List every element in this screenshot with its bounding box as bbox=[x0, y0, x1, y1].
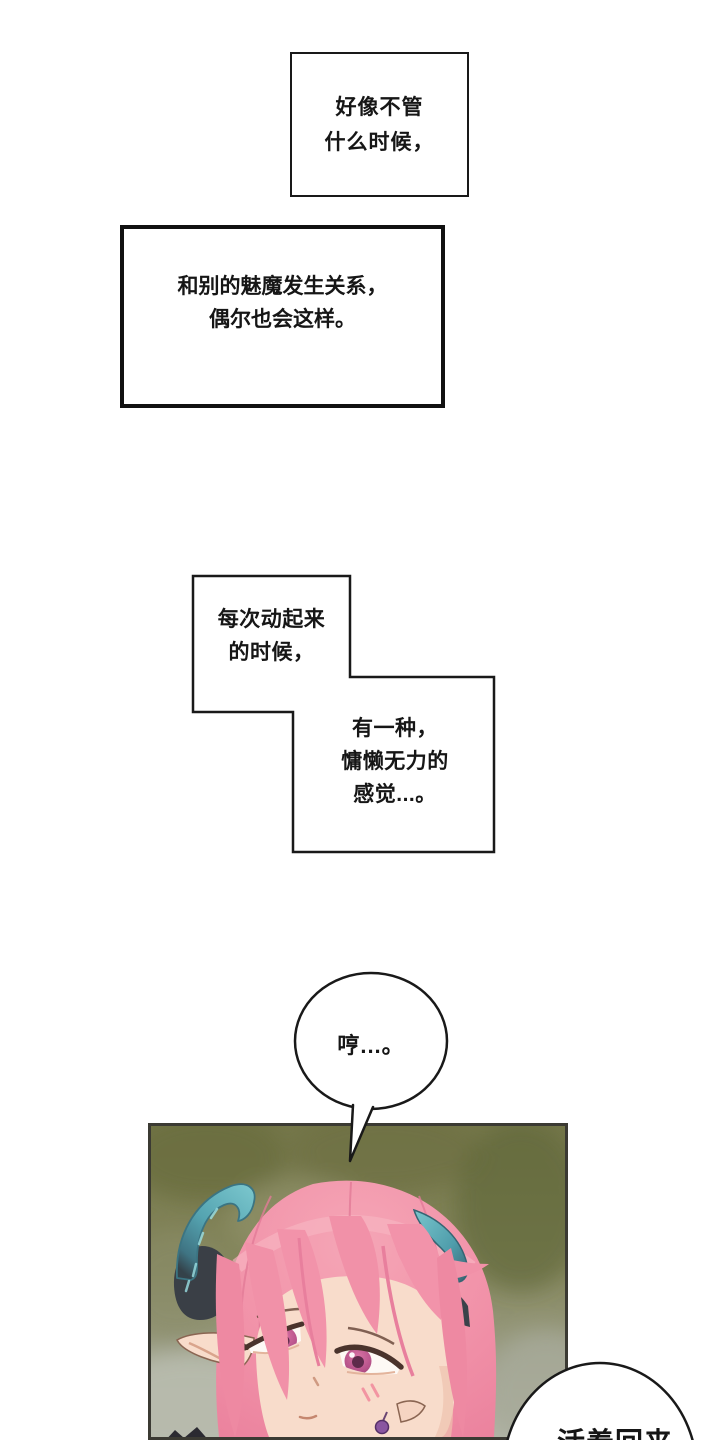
bubble-tail bbox=[350, 1105, 373, 1161]
narration-box-2: 和别的魅魔发生关系， 偶尔也会这样。 bbox=[120, 225, 445, 408]
speech-bubble-1 bbox=[283, 963, 463, 1168]
narration-line: 每次动起来 bbox=[193, 603, 350, 636]
narration-line: 偶尔也会这样。 bbox=[209, 303, 356, 336]
narration-line: 和别的魅魔发生关系， bbox=[178, 270, 388, 303]
narration-line: 感觉...。 bbox=[300, 778, 490, 811]
comic-page: 好像不管 什么时候， 和别的魅魔发生关系， 偶尔也会这样。 每次动起来 的时候，… bbox=[0, 0, 720, 1440]
speech-bubble-2-text: 活着回来 bbox=[550, 1421, 680, 1440]
narration-line: 慵懒无力的 bbox=[300, 745, 490, 778]
narration-line: 好像不管 bbox=[336, 90, 424, 125]
speech-bubble-1-text: 哼...。 bbox=[321, 1028, 421, 1060]
earring bbox=[376, 1421, 389, 1434]
narration-line: 有一种， bbox=[300, 712, 490, 745]
narration-box-3-text: 每次动起来 的时候， bbox=[193, 603, 350, 669]
narration-box-4-text: 有一种， 慵懒无力的 感觉...。 bbox=[300, 712, 490, 811]
narration-box-1: 好像不管 什么时候， bbox=[290, 52, 469, 197]
narration-line: 什么时候， bbox=[325, 125, 435, 160]
narration-line: 的时候， bbox=[193, 636, 350, 669]
